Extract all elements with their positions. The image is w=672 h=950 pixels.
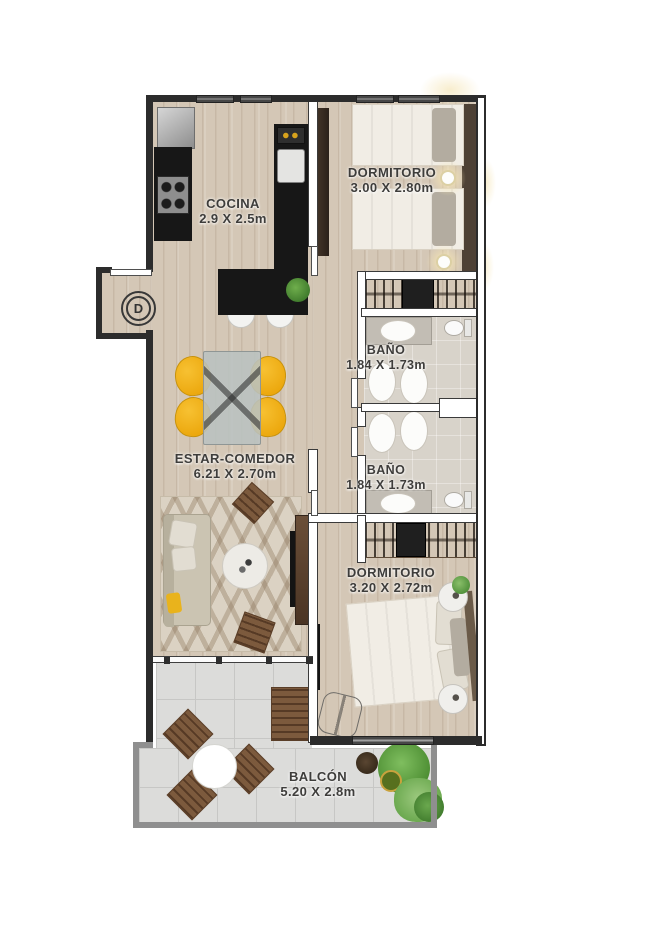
- entry-door-leaf: [110, 269, 152, 276]
- tv-console: [295, 515, 310, 625]
- label-dormitorio2-dims: 3.20 X 2.72m: [347, 580, 435, 595]
- label-dormitorio1-name: DORMITORIO: [348, 165, 436, 180]
- sofa-icon: [163, 514, 211, 626]
- bath1-sink-icon: [380, 320, 416, 342]
- label-bano2-dims: 1.84 X 1.73m: [346, 478, 426, 493]
- fridge-icon: [157, 107, 195, 149]
- bath2-toilet-tank: [464, 491, 472, 509]
- wall-left-upper: [146, 96, 153, 272]
- label-estar-comedor-name: ESTAR-COMEDOR: [175, 451, 296, 466]
- label-bano1-dims: 1.84 X 1.73m: [346, 358, 426, 373]
- sofa-cushion-2: [171, 546, 197, 572]
- label-bano2-name: BAÑO: [346, 463, 426, 478]
- table-lamp-2: [436, 254, 452, 270]
- label-dormitorio2: DORMITORIO 3.20 X 2.72m: [347, 565, 435, 595]
- bath2-sink-icon: [380, 493, 416, 514]
- wall-bedroom2-left: [309, 516, 317, 742]
- window-bedroom1-2: [398, 95, 440, 103]
- bath1-door-leaf: [351, 378, 358, 408]
- wall-nook-bottom: [96, 333, 152, 339]
- wall-bedroom2-top: [309, 514, 482, 522]
- wall-closet2-left: [358, 516, 365, 562]
- label-cocina: COCINA 2.9 X 2.5m: [199, 196, 267, 226]
- label-estar-comedor-dims: 6.21 X 2.70m: [175, 466, 296, 481]
- label-balcon-name: BALCÓN: [280, 769, 355, 784]
- bath2-toilet-icon: [444, 492, 464, 508]
- window-bedroom2-balcony: [352, 736, 434, 745]
- label-bano1-name: BAÑO: [346, 343, 426, 358]
- balcony-table: [192, 744, 237, 789]
- kitchen-sink-icon: [277, 149, 305, 183]
- bedroom2-door-leaf: [311, 490, 318, 516]
- balcony-plant-pot-dark: [356, 752, 378, 774]
- label-cocina-dims: 2.9 X 2.5m: [199, 211, 267, 226]
- label-dormitorio1-dims: 3.00 X 2.80m: [348, 180, 436, 195]
- bath2-tub: [368, 413, 396, 453]
- wall-living-corridor: [309, 450, 317, 492]
- balcony-plant-leaves: [414, 792, 444, 822]
- table-lamp-1: [440, 170, 456, 186]
- bath1-toilet-icon: [444, 320, 464, 336]
- wall-kitchen-bedroom1: [309, 100, 317, 246]
- counter-plant-icon: [286, 278, 310, 302]
- bed1-pillow: [432, 108, 456, 162]
- floor-plan: D COCINA 2.9 X 2.5m DORMITORIO 3.00 X 2.…: [0, 0, 672, 950]
- slider-post-4: [306, 657, 313, 664]
- unit-label: D: [126, 296, 151, 321]
- kitchen-counter-right: [274, 124, 308, 270]
- bath2-door-leaf: [351, 427, 358, 457]
- wall-balcony-right: [431, 745, 437, 828]
- bath1-toilet-tank: [464, 319, 472, 337]
- slider-post-1: [164, 657, 170, 664]
- label-cocina-name: COCINA: [199, 196, 267, 211]
- stove-icon: [157, 176, 189, 214]
- deck-mat: [271, 687, 313, 741]
- dining-table: [203, 351, 261, 445]
- duct-shaft: [440, 399, 480, 417]
- wall-left-lower: [146, 330, 153, 745]
- wall-balcony-left: [133, 742, 139, 828]
- slider-post-2: [216, 657, 222, 664]
- bedroom2-nightstand-bottom: [438, 684, 468, 714]
- bedroom1-nightstand-strip: [462, 104, 476, 272]
- coffee-table-icon: [222, 543, 268, 589]
- label-dormitorio1: DORMITORIO 3.00 X 2.80m: [348, 165, 436, 195]
- cooktop-icon: [277, 127, 305, 144]
- window-kitchen-2: [240, 95, 272, 103]
- bed2-pillow: [432, 192, 456, 246]
- slider-post-3: [266, 657, 272, 664]
- nightstand-plant-icon: [452, 576, 470, 594]
- label-dormitorio2-name: DORMITORIO: [347, 565, 435, 580]
- wall-balcony-bottom: [133, 822, 437, 828]
- closet1-dresser: [402, 278, 434, 310]
- window-bedroom1-1: [356, 95, 394, 103]
- bath2-shower-tray: [400, 411, 428, 451]
- closet2-dresser: [396, 523, 426, 557]
- sliding-door-living-balcony: [153, 656, 313, 663]
- label-estar-comedor: ESTAR-COMEDOR 6.21 X 2.70m: [175, 451, 296, 481]
- sofa-yellow-cushion: [166, 592, 183, 614]
- wall-nook-left: [96, 267, 102, 339]
- wall-right: [476, 96, 486, 746]
- wall-bedroom1-bottom: [362, 272, 480, 279]
- window-kitchen-1: [196, 95, 234, 103]
- label-bano2: BAÑO 1.84 X 1.73m: [346, 463, 426, 493]
- bedroom1-door-leaf: [311, 246, 318, 276]
- wall-closet1-bath1: [362, 309, 480, 316]
- label-balcon-dims: 5.20 X 2.8m: [280, 784, 355, 799]
- sofa-cushion-1: [168, 519, 198, 549]
- unit-label-badge: D: [121, 291, 156, 326]
- label-bano1: BAÑO 1.84 X 1.73m: [346, 343, 426, 373]
- label-balcon: BALCÓN 5.20 X 2.8m: [280, 769, 355, 799]
